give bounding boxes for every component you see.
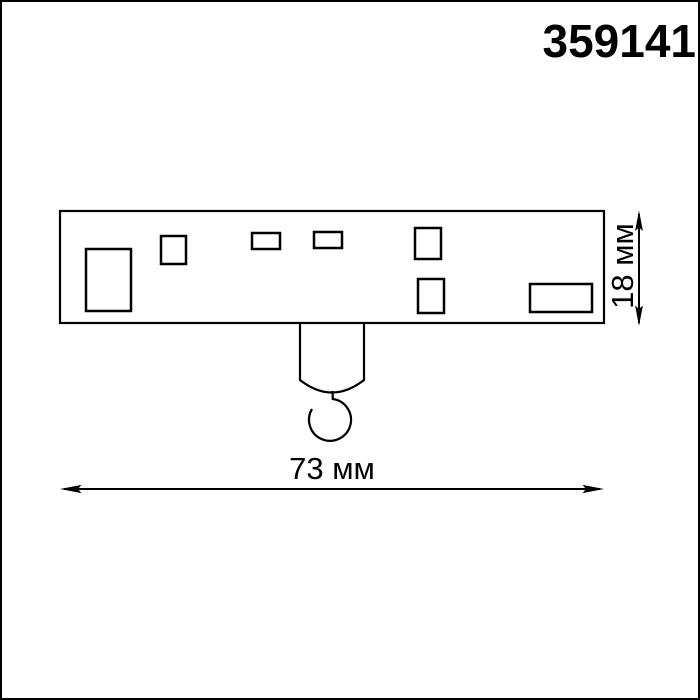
cutout-wide-right [530,284,592,312]
body-outline [60,211,604,323]
height-dimension: 18 мм [605,211,643,327]
hook-icon [309,391,351,441]
product-code-label: 359141 [543,15,697,67]
width-dimension: 73 мм [60,451,604,493]
cutout-large-left [86,249,131,311]
width-dimension-label: 73 мм [289,451,375,486]
suspension-neck [300,323,364,393]
page-frame: 359141 18 мм 73 мм [0,0,700,700]
cutout-right-lower [418,279,444,313]
dimension-drawing: 359141 18 мм 73 мм [2,2,700,700]
height-dimension-label: 18 мм [605,223,640,309]
cutout-slot-center-2 [314,232,342,248]
cutout-right-upper [415,228,441,259]
cutout-slot-center-1 [252,233,280,249]
cutout-square-left [161,236,186,264]
body-cutouts [86,228,592,313]
